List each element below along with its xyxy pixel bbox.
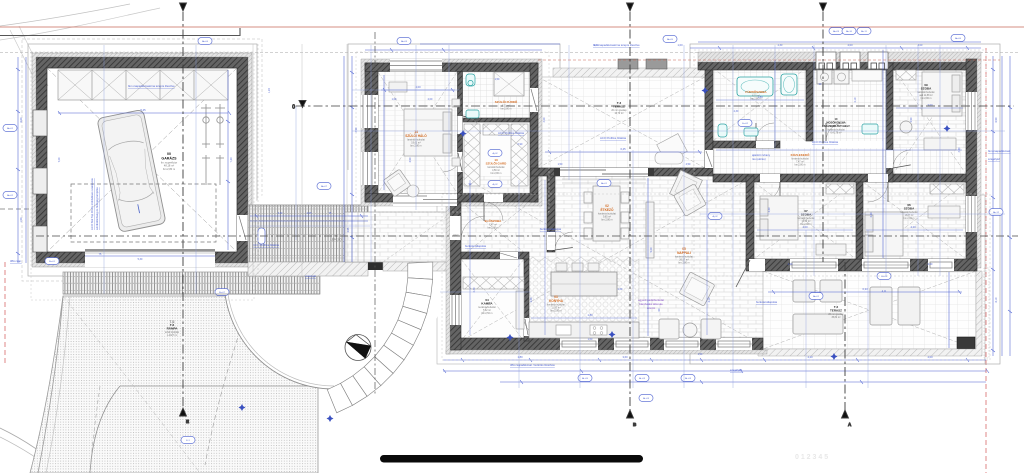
svg-text:11,77 m²: 11,77 m²	[905, 214, 914, 217]
svg-text:SZOBA: SZOBA	[801, 213, 812, 217]
svg-text:4,00: 4,00	[927, 355, 933, 359]
svg-text:6,41,78 m²: 6,41,78 m²	[831, 132, 842, 135]
svg-text:Ka-02: Ka-02	[742, 123, 749, 125]
svg-text:SZOBA: SZOBA	[904, 207, 915, 211]
svg-text:0,90: 0,90	[518, 143, 523, 146]
svg-text:4,59 m²: 4,59 m²	[492, 169, 500, 172]
svg-text:20 mm greslap: 20 mm greslap	[611, 109, 627, 112]
svg-text:1,20: 1,20	[268, 88, 271, 93]
svg-text:4,50: 4,50	[355, 127, 358, 132]
svg-text:KAMRA: KAMRA	[481, 302, 493, 306]
svg-text:6,90: 6,90	[995, 117, 998, 122]
svg-text:1,50: 1,50	[495, 78, 500, 81]
svg-text:szintkülönbség és hidegág tomp: szintkülönbség és hidegág tompítás	[95, 187, 99, 230]
svg-text:SZOBA: SZOBA	[921, 87, 932, 91]
svg-text:3,10: 3,10	[708, 297, 711, 302]
svg-text:Ab-12: Ab-12	[993, 211, 1000, 214]
svg-text:bm:2,80 m: bm:2,80 m	[488, 228, 499, 230]
svg-text:fém csapadékcsat.: fém csapadékcsat.	[988, 149, 1011, 153]
svg-text:3,00: 3,00	[918, 44, 923, 47]
svg-text:4,05: 4,05	[306, 211, 312, 215]
svg-text:LÉPCSŐ: LÉPCSŐ	[330, 237, 342, 242]
svg-text:bm:2,80 m: bm:2,80 m	[163, 167, 175, 171]
svg-text:2,05: 2,05	[347, 227, 350, 232]
svg-text:Ab-09: Ab-09	[833, 30, 840, 33]
svg-text:fém csapadékcsatorna terepre i: fém csapadékcsatorna terepre illesztve	[128, 84, 175, 88]
svg-text:Ab-05: Ab-05	[667, 38, 674, 41]
svg-text:1,80: 1,80	[757, 95, 763, 99]
svg-text:térkő burkolat: térkő burkolat	[165, 331, 179, 334]
svg-text:13,20 m²: 13,20 m²	[801, 220, 810, 223]
svg-text:2,30: 2,30	[778, 44, 783, 47]
svg-text:SZÜLŐI GARD: SZÜLŐI GARD	[486, 161, 507, 166]
svg-text:3,30: 3,30	[278, 212, 283, 215]
svg-text:ELŐSZOBA: ELŐSZOBA	[485, 218, 503, 223]
svg-text:5,45: 5,45	[140, 108, 146, 112]
svg-text:Aj-02: Aj-02	[492, 183, 498, 186]
svg-text:AL-03: AL-03	[685, 377, 692, 380]
svg-text:AL-03: AL-03	[643, 397, 650, 400]
svg-text:kerámia burkolat: kerámia burkolat	[479, 306, 496, 309]
svg-text:ACO Profiline fóliázás: ACO Profiline fóliázás	[600, 136, 627, 140]
svg-text:38A csapadékcsat. Vezérlés Rés: 38A csapadékcsat. Vezérlés Részlete	[510, 363, 555, 367]
svg-text:bm:2,80 m: bm:2,80 m	[501, 109, 512, 111]
svg-text:szegélykő: szegélykő	[730, 368, 742, 372]
svg-text:7,47 m²: 7,47 m²	[489, 224, 497, 227]
svg-text:35,82 m²: 35,82 m²	[831, 316, 840, 319]
svg-text:szegélykő: szegélykő	[988, 157, 1000, 161]
svg-text:Ab-11: Ab-11	[861, 30, 867, 33]
svg-text:4,20: 4,20	[807, 355, 813, 359]
svg-text:bm:2,50 m: bm:2,50 m	[482, 313, 493, 315]
svg-text:1-4027 m²: 1-4027 m²	[167, 334, 178, 337]
svg-text:RÁMPA: RÁMPA	[167, 326, 179, 331]
svg-text:bm:2,80 m: bm:2,80 m	[601, 219, 612, 222]
svg-text:laminált burkolat: laminált burkolat	[918, 91, 935, 94]
svg-text:bm:2,80 m: bm:2,80 m	[921, 98, 932, 100]
svg-text:Ka-08: Ka-08	[881, 276, 888, 278]
svg-text:csapógát: csapógát	[305, 274, 316, 278]
svg-text:5,30: 5,30	[138, 258, 143, 261]
svg-text:1,60: 1,60	[618, 288, 623, 291]
svg-text:4,00: 4,00	[928, 263, 933, 266]
svg-text:4,00: 4,00	[802, 225, 808, 229]
svg-text:20 mm greslap: 20 mm greslap	[828, 313, 844, 316]
svg-text:2,10: 2,10	[854, 97, 857, 102]
svg-text:laminált burkolat: laminált burkolat	[798, 217, 815, 220]
svg-text:4,00: 4,00	[847, 43, 853, 47]
svg-text:3,60: 3,60	[622, 355, 628, 359]
svg-text:3,30: 3,30	[870, 212, 873, 217]
svg-text:1,80: 1,80	[517, 355, 523, 359]
svg-text:4,11: 4,11	[882, 290, 887, 293]
svg-text:Ab-10: Ab-10	[846, 30, 853, 33]
svg-text:bm:2,80 m: bm:2,80 m	[491, 173, 502, 175]
svg-text:TERASZ: TERASZ	[613, 105, 625, 109]
svg-text:Ab-01: Ab-01	[813, 295, 820, 298]
svg-text:aad 11,88 m²: aad 11,88 m²	[919, 94, 933, 97]
svg-text:ÉTKEZŐ: ÉTKEZŐ	[601, 207, 614, 212]
svg-text:4,50: 4,50	[686, 163, 691, 166]
svg-text:4,00: 4,00	[958, 147, 961, 152]
svg-text:4,20: 4,20	[788, 263, 793, 266]
svg-text:1,00: 1,00	[594, 44, 599, 47]
svg-text:2,40: 2,40	[473, 287, 476, 292]
svg-text:16,70 m²: 16,70 m²	[614, 112, 623, 115]
svg-text:3,00: 3,00	[530, 297, 533, 302]
svg-text:1,60: 1,60	[588, 338, 593, 341]
svg-text:AL-03: AL-03	[639, 377, 646, 380]
svg-text:Ab-01: Ab-01	[601, 182, 608, 185]
svg-text:rés (elérés): rés (elérés)	[752, 157, 766, 161]
svg-text:SZÜLŐI HÁLÓ: SZÜLŐI HÁLÓ	[405, 133, 427, 138]
svg-text:1,80: 1,80	[587, 313, 593, 317]
svg-text:7,20: 7,20	[229, 157, 233, 163]
svg-text:ACO Profiline fóliázás: ACO Profiline fóliázás	[812, 140, 839, 144]
svg-text:GARÁZS: GARÁZS	[161, 156, 177, 161]
svg-text:6,45: 6,45	[620, 147, 626, 151]
svg-text:ACO Profiline fóliázás: ACO Profiline fóliázás	[253, 243, 280, 247]
svg-text:4,00: 4,00	[415, 85, 421, 89]
svg-text:ajánlott zuhany: ajánlott zuhany	[752, 153, 771, 157]
svg-text:Ab-01: Ab-01	[7, 127, 14, 130]
svg-text:KONYHA: KONYHA	[549, 299, 564, 303]
svg-text:laminált burkolat: laminált burkolat	[488, 166, 505, 169]
svg-text:4,20: 4,20	[543, 117, 546, 122]
svg-text:kerámia burkolat: kerámia burkolat	[792, 158, 809, 161]
svg-text:E: E	[186, 419, 189, 424]
svg-text:Ab-02: Ab-02	[7, 194, 14, 197]
svg-text:1,50: 1,50	[20, 217, 23, 222]
svg-text:3,50: 3,50	[910, 117, 913, 122]
svg-text:Ab-06: Ab-06	[955, 37, 962, 40]
svg-text:00: 00	[167, 152, 171, 156]
svg-text:1,00: 1,00	[677, 43, 683, 47]
svg-text:Aj-02: Aj-02	[492, 152, 498, 155]
svg-text:3,30: 3,30	[768, 207, 771, 212]
svg-text:Ab-03: Ab-03	[401, 40, 408, 43]
svg-text:burkolat átlapolás: burkolat átlapolás	[465, 244, 487, 248]
svg-text:7,20: 7,20	[58, 157, 61, 162]
svg-text:bm:2,80 m: bm:2,80 m	[550, 310, 561, 313]
svg-text:2,30: 2,30	[734, 110, 739, 113]
svg-text:7,47 m²: 7,47 m²	[796, 161, 804, 164]
svg-text:2,00: 2,00	[428, 98, 433, 101]
svg-text:SZÜLŐI FÜRDŐ: SZÜLŐI FÜRDŐ	[495, 99, 518, 104]
svg-text:burkolat átlapolás: burkolat átlapolás	[540, 227, 562, 231]
svg-text:AL-05: AL-05	[582, 377, 589, 380]
svg-text:0 1 2 3 4 5: 0 1 2 3 4 5	[795, 454, 828, 461]
svg-text:1,50: 1,50	[698, 353, 703, 356]
svg-text:0: 0	[292, 105, 295, 111]
svg-text:laminált burkolat: laminált burkolat	[901, 211, 918, 214]
svg-text:3,90: 3,90	[409, 157, 412, 162]
svg-text:ACO Slot Top Drufix működéses: ACO Slot Top Drufix működéses szakaszos	[90, 178, 94, 230]
svg-text:bm:2,80 m: bm:2,80 m	[795, 165, 806, 167]
svg-text:5,42 m²: 5,42 m²	[483, 309, 491, 312]
svg-text:KÖZLEKEDŐ: KÖZLEKEDŐ	[791, 152, 811, 157]
svg-text:ACO Profiline fóliázás: ACO Profiline fóliázás	[498, 131, 525, 135]
svg-text:FÜRDŐSZOBA: FÜRDŐSZOBA	[745, 89, 767, 94]
svg-text:Ab-07: Ab-07	[321, 185, 328, 188]
svg-text:8,10: 8,10	[995, 297, 998, 302]
svg-text:4,20: 4,20	[910, 225, 916, 229]
svg-text:1,00: 1,00	[392, 98, 397, 101]
svg-text:Ra-01: Ra-01	[49, 261, 56, 263]
svg-text:Ab-04: Ab-04	[202, 40, 209, 43]
svg-text:burkolat átlapolás: burkolat átlapolás	[756, 300, 778, 304]
svg-text:fém csapadékcsatorna terepre i: fém csapadékcsatorna terepre illesztve	[593, 43, 640, 47]
svg-text:TERASZ: TERASZ	[830, 309, 842, 313]
svg-text:bm:2,80 m: bm:2,80 m	[904, 218, 915, 220]
svg-text:ajánl.: ajánl.	[453, 234, 459, 237]
svg-text:1,50: 1,50	[558, 163, 563, 166]
svg-text:6,33: 6,33	[862, 287, 868, 291]
svg-text:Aj-02: Aj-02	[712, 215, 718, 218]
svg-text:5,20: 5,20	[650, 247, 653, 252]
svg-text:6,60: 6,60	[20, 117, 23, 122]
svg-text:38A csap.: 38A csap.	[10, 259, 22, 263]
